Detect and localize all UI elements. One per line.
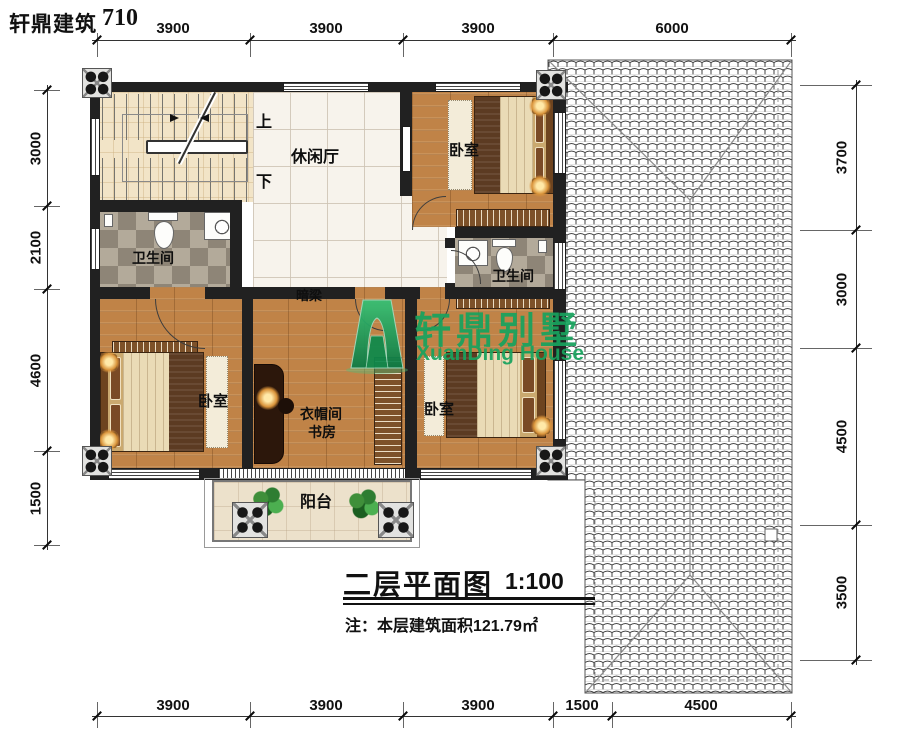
wardrobe-hangers	[456, 209, 550, 227]
column-icon	[82, 68, 112, 98]
shower-icon	[538, 240, 547, 253]
window	[420, 468, 532, 480]
dim-label: 3900	[296, 20, 356, 37]
dim-label: 1500	[552, 697, 612, 714]
toilet-tank-icon	[148, 212, 178, 221]
door-leaf	[402, 126, 411, 172]
bedroom2-label: 卧室	[198, 390, 228, 411]
window	[435, 82, 521, 92]
dim-label: 4500	[671, 697, 731, 714]
dim-label: 3700	[834, 128, 851, 188]
area-note: 注：本层建筑面积121.79㎡	[345, 612, 538, 636]
plant-icon	[346, 488, 382, 520]
window	[553, 242, 566, 290]
dim-line-left	[47, 85, 48, 550]
dim-label: 4500	[834, 407, 851, 467]
interior-wall	[445, 283, 455, 299]
dim-ext	[800, 525, 872, 526]
bedside-rug	[424, 356, 444, 436]
interior-wall	[230, 200, 242, 299]
bathroom1-label: 卫生间	[132, 248, 174, 268]
dim-label: 3900	[448, 20, 508, 37]
balcony-column-icon	[232, 502, 268, 538]
interior-wall	[450, 287, 566, 299]
title-underline	[343, 603, 595, 605]
dim-ext	[800, 348, 872, 349]
brand-number: 710	[102, 5, 138, 32]
desk	[254, 364, 284, 464]
plan-scale: 1:100	[505, 568, 564, 595]
desk-lamp-glow-icon	[256, 386, 280, 410]
bed-sheet	[123, 353, 169, 451]
desk-chair	[278, 398, 294, 414]
floorplan-sheet: 轩鼎建筑 710	[0, 0, 900, 750]
dim-line-top	[92, 40, 796, 41]
study-label: 书房	[308, 422, 336, 442]
toilet-tank-icon	[492, 239, 516, 247]
shower-icon	[104, 214, 113, 227]
stair-arrow-icon	[170, 114, 179, 122]
interior-wall	[455, 227, 566, 238]
column-icon	[536, 446, 566, 476]
dim-ext	[800, 85, 872, 86]
balcony-column-icon	[378, 502, 414, 538]
dim-ext	[800, 230, 872, 231]
lamp-glow-icon	[529, 175, 551, 197]
dim-label: 3900	[143, 20, 203, 37]
interior-wall	[205, 287, 355, 299]
window	[108, 468, 200, 480]
dim-label: 4600	[28, 341, 45, 401]
stairs-down-label: 下	[256, 168, 272, 192]
column-icon	[82, 446, 112, 476]
dim-line-right	[856, 80, 857, 665]
interior-wall	[445, 238, 455, 248]
leisure-hall-label: 休闲厅	[291, 143, 339, 167]
dim-label: 3500	[834, 563, 851, 623]
window	[90, 228, 100, 270]
dim-label: 3900	[296, 697, 356, 714]
dim-label: 3900	[143, 697, 203, 714]
dim-label: 3000	[834, 260, 851, 320]
stair-landing	[146, 140, 248, 154]
interior-wall	[90, 200, 242, 212]
balcony-label: 阳台	[300, 488, 332, 512]
brand-title: 轩鼎建筑	[9, 8, 97, 38]
bathroom2-label: 卫生间	[492, 266, 534, 286]
stairs-up-label: 上	[256, 108, 272, 132]
dim-line-bottom	[92, 716, 796, 717]
dim-label: 6000	[642, 20, 702, 37]
dim-label: 3900	[448, 697, 508, 714]
hidden-beam-label: 暗梁	[296, 285, 322, 304]
lamp-glow-icon	[98, 351, 120, 373]
bedroom1-label: 卧室	[449, 139, 479, 160]
window	[553, 112, 566, 174]
dim-label: 1500	[28, 469, 45, 529]
window	[283, 82, 369, 92]
title-underline	[343, 597, 595, 600]
interior-wall	[98, 287, 150, 299]
dim-ext	[800, 660, 872, 661]
lamp-glow-icon	[531, 415, 553, 437]
window	[553, 360, 566, 440]
watermark-logo-icon	[344, 296, 410, 376]
window	[90, 118, 100, 176]
stair-arrow-icon	[200, 114, 209, 122]
dim-label: 2100	[28, 218, 45, 278]
watermark-en: XuanDing House	[416, 342, 584, 366]
bedroom3-label: 卧室	[424, 398, 454, 419]
cloakroom-label: 衣帽间	[300, 404, 342, 424]
dim-label: 3000	[28, 119, 45, 179]
column-icon	[536, 70, 566, 100]
bed-sheet	[500, 97, 533, 193]
interior-wall	[242, 299, 253, 468]
